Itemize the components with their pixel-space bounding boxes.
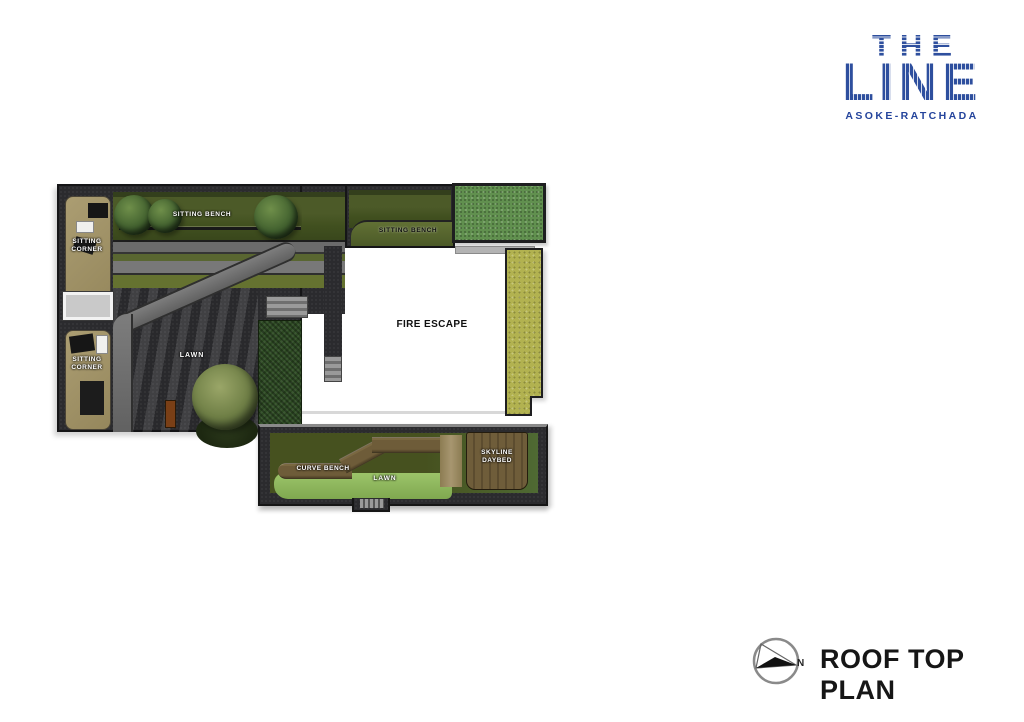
table (76, 221, 94, 233)
drawing-title: ROOF TOP PLAN (820, 644, 1024, 706)
sitting-deck-lower (65, 330, 111, 430)
shade-tree-icon (192, 364, 258, 430)
paving-patch-2 (324, 356, 342, 382)
curve-bench-band-c (372, 437, 450, 453)
sitting-corner-upper-label: SITTING CORNER (64, 238, 110, 254)
daybed-mat (80, 381, 104, 415)
tan-path (440, 435, 462, 487)
skylight-panel (63, 292, 113, 320)
stair-treads (360, 499, 384, 508)
sitting-bench-corner-band: SITTING BENCH (345, 184, 455, 248)
lawn-lower-label: LAWN (360, 475, 410, 483)
grass-patch-top-right (452, 183, 546, 243)
north-label: N (797, 658, 804, 669)
garden-strip-bottom: SKYLINE DAYBED CURVE BENCH LAWN (258, 424, 548, 506)
north-arrow-icon (750, 634, 804, 688)
stair-protrusion (352, 498, 390, 512)
roof-plan: FIRE ESCAPE SITTING BENCH LA (0, 0, 1024, 722)
tree-canopy-icon (254, 195, 298, 239)
bench-seat (88, 203, 108, 218)
paving-patch-1 (266, 296, 308, 318)
grass-strip-right (505, 248, 543, 398)
lawn-main-label: LAWN (162, 352, 222, 361)
bench-seat (69, 333, 95, 353)
maintenance-door (165, 400, 176, 428)
skyline-daybed-label: SKYLINE DAYBED (472, 449, 522, 465)
sitting-bench-top-label: SITTING BENCH (154, 211, 250, 219)
page: THE LINE ASOKE-RATCHADA FIRE ESCAPE SITT… (0, 0, 1024, 722)
table (96, 335, 108, 354)
lawn-path-vertical (113, 314, 133, 432)
hedge-block (258, 320, 302, 432)
fire-escape-label: FIRE ESCAPE (377, 319, 487, 331)
grass-strip-right-foot (505, 396, 532, 416)
sitting-corner-lower-label: SITTING CORNER (64, 356, 110, 372)
curve-bench-label: CURVE BENCH (286, 465, 360, 473)
sitting-bench-corner-label: SITTING BENCH (363, 227, 453, 235)
planting-band-top-mid (302, 192, 345, 242)
